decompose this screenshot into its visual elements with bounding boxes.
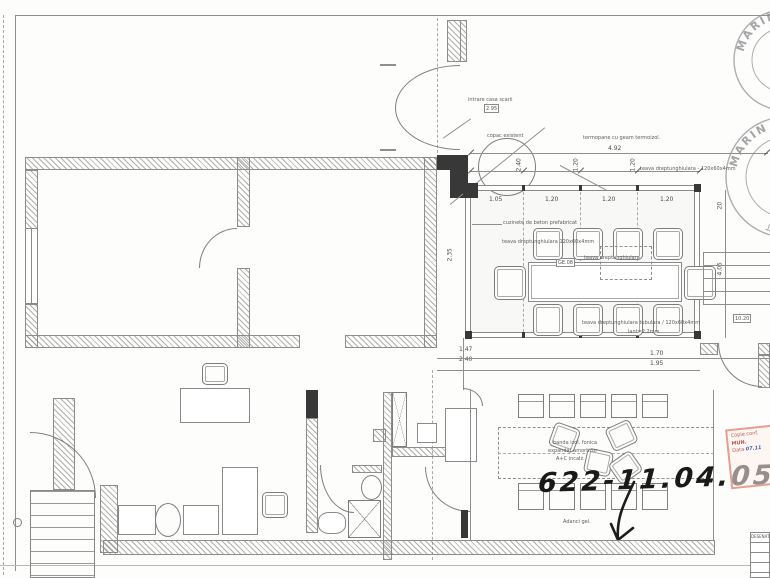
dim-label: 4.92 [608, 145, 621, 152]
door-arc [30, 432, 96, 498]
stamp-text: MARIN A. [734, 9, 770, 53]
wall-segment [461, 510, 468, 538]
stamp-text: VERIFICAT [764, 213, 770, 234]
dim-label: 2.35 [447, 248, 454, 261]
wall-segment [306, 418, 318, 533]
door-arc [395, 65, 460, 108]
construction-line [523, 192, 524, 332]
dim-label: 1.20 [573, 158, 580, 171]
handrail-post [13, 518, 22, 527]
staircase [30, 490, 95, 578]
office-note: expandat amortizor [548, 449, 597, 455]
cabinet [183, 505, 219, 535]
wall-segment [306, 390, 318, 418]
dim-label: 20 [717, 202, 724, 210]
svg-text:VERIFICAT: VERIFICAT [764, 213, 770, 234]
desk [445, 408, 477, 462]
stool [642, 394, 668, 418]
wall-glass [465, 185, 700, 191]
step-line [703, 265, 770, 266]
dim-label: 1.20 [660, 196, 673, 203]
shaft [392, 392, 407, 447]
approval-stamp: Copie conf. MUN. Data 07.11 [725, 423, 770, 490]
dim-label: 1.05 [489, 196, 502, 203]
stamp-text: MARIN A. [727, 117, 770, 169]
stool [518, 394, 544, 418]
wall-segment [25, 157, 437, 170]
frame-line-top [15, 15, 770, 16]
shower [348, 500, 381, 538]
wardrobe [222, 467, 258, 535]
post [694, 184, 701, 192]
annotation-tree: copac existent [487, 134, 524, 140]
annotation-beam-mid: teava dreptunghiulara [584, 256, 640, 262]
sink [361, 475, 382, 500]
chair [202, 363, 228, 385]
chair [533, 304, 563, 336]
frame-line-bottom [0, 565, 770, 566]
post [522, 185, 525, 191]
frame-line-left [15, 15, 16, 571]
dim-label: 1.70 [650, 350, 663, 357]
stool [611, 394, 637, 418]
svg-text:MARIN A.: MARIN A. [727, 117, 770, 169]
title-block: DESENAT [750, 532, 770, 578]
wall-segment [25, 170, 38, 230]
step-edge [703, 252, 704, 305]
basin [155, 503, 181, 537]
terrace-tag: 10.20 [733, 314, 751, 323]
stool [580, 394, 606, 418]
dim-label: 2.40 [516, 158, 523, 171]
window [25, 228, 38, 304]
wall-segment [424, 157, 437, 348]
office-note: A+C incalz. [556, 457, 585, 463]
property-line [3, 15, 4, 575]
cabinet [118, 505, 156, 535]
wall-glass [465, 185, 471, 338]
wall-glass [694, 185, 700, 338]
annotation-beam-bottom: teava dreptunghiulara tubulara / 120x60x… [582, 321, 700, 327]
chair [653, 228, 683, 260]
toilet [318, 512, 346, 534]
dim-label: 1.47 [459, 346, 472, 353]
wall-segment [700, 343, 718, 355]
post [522, 332, 525, 338]
step-line [703, 252, 770, 253]
leader-line [472, 224, 502, 225]
office-note: banda izol. fonica [553, 441, 597, 447]
dim-label: 1.95 [650, 360, 663, 367]
step-line [703, 278, 770, 279]
entrance-tag: 2.95 [484, 104, 499, 113]
svg-text:MARIN A.: MARIN A. [734, 9, 770, 53]
dim-label: 1.20 [602, 196, 615, 203]
annotation-beam-bottom-sub: lant=2.2mm [628, 330, 659, 336]
wall-segment [758, 355, 770, 388]
annotation-entrance: intrare casa scarii [468, 98, 513, 104]
wall-pier [463, 183, 478, 198]
door-arc [718, 343, 762, 387]
post [694, 331, 701, 339]
wall-line [437, 358, 770, 359]
centerline [432, 370, 433, 560]
wall-segment [237, 157, 250, 227]
chair [262, 492, 288, 518]
dim-line [470, 153, 768, 154]
step-line [703, 304, 770, 305]
door-arc [395, 108, 460, 150]
dim-label: 1.20 [545, 196, 558, 203]
annotation-glazing: termopane cu geam termoizol. [583, 136, 660, 142]
dim-line [725, 190, 726, 338]
wall-pier [447, 20, 467, 62]
detail-dashed-box [600, 246, 652, 280]
side-table [417, 423, 437, 443]
dim-label: 1.20 [630, 158, 637, 171]
title-block-label: DESENAT [751, 533, 769, 539]
wall-line [437, 370, 700, 371]
desk [180, 388, 250, 423]
door-arc [199, 228, 237, 268]
stool [549, 394, 575, 418]
corridor-line [460, 20, 461, 62]
door-arc [463, 388, 483, 406]
chair [684, 266, 716, 300]
door-leaf [380, 64, 396, 66]
handwritten-arrow [600, 478, 650, 548]
wall-segment [103, 540, 715, 555]
wall-pier [373, 429, 386, 442]
step-line [703, 291, 770, 292]
chair [494, 266, 526, 300]
office-note: Adanci gel. [563, 520, 591, 526]
wall-segment [352, 465, 382, 473]
wall-segment [237, 268, 250, 348]
annotation-footing: cuzinete de beton prefabricat [503, 221, 577, 227]
approval-date-value: 07.11 [745, 445, 761, 453]
post [636, 185, 639, 191]
dim-line [470, 171, 700, 172]
annotation-beam-left: teava dreptunghiulara 120x60x4mm [502, 240, 594, 246]
post [579, 185, 582, 191]
floor-plan-scan: MARIN A. MARIN A. VERIFICAT intrare c [0, 0, 770, 578]
wall-line [463, 338, 464, 390]
wall-corner [437, 155, 468, 170]
wall-line [470, 390, 471, 540]
post [465, 331, 472, 339]
round-stamp-lower: MARIN A. VERIFICAT [700, 104, 770, 254]
wall-segment [25, 335, 300, 348]
wall-segment [383, 392, 392, 560]
door-leaf [380, 149, 396, 151]
approval-date-label: Data [732, 447, 745, 454]
